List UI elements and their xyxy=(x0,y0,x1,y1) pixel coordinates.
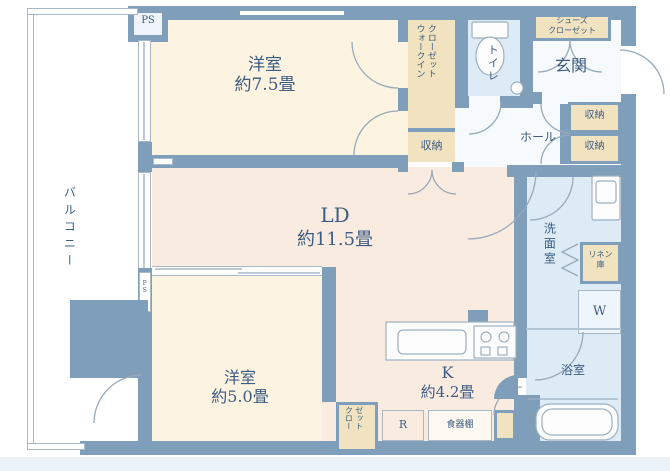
kitchen-label: K 約4.2畳 xyxy=(385,363,510,401)
bedroom2-size: 約5.0畳 xyxy=(211,387,268,406)
fridge-label: R xyxy=(382,418,424,431)
door-arc-exterior xyxy=(94,375,142,423)
kitchen-name: K xyxy=(442,363,454,382)
linen-label: リネン 庫 xyxy=(580,250,621,271)
ps-side-label: PS xyxy=(141,280,148,294)
linen-bifold-door xyxy=(562,244,578,276)
bedroom1-size: 約7.5畳 xyxy=(234,75,295,95)
toilet-washlet xyxy=(511,82,523,94)
door-arc-hall-storage-1 xyxy=(541,104,570,133)
bathtub-inner xyxy=(542,409,612,435)
hall-storage-2-label: 収納 xyxy=(568,141,621,153)
bedroom2-label: 洋室 約5.0畳 xyxy=(170,368,310,406)
door-arc-wic-storage-r xyxy=(432,170,456,194)
hall-label: ホール xyxy=(508,130,568,144)
living-label: LD 約11.5畳 xyxy=(265,204,405,251)
kitchen-sink xyxy=(398,330,466,354)
closet-label: クロー ゼット xyxy=(344,406,363,430)
ps-top-label: PS xyxy=(134,15,162,27)
door-arc-wic-storage-l xyxy=(408,170,432,194)
toilet-label: トイレ xyxy=(486,44,499,83)
door-arc-entrance xyxy=(620,50,664,94)
balcony-label: バルコニー xyxy=(62,186,76,271)
door-arc-washroom xyxy=(530,177,573,220)
door-arc-toilet xyxy=(469,102,501,134)
wic-label: ウォークイン クローゼット xyxy=(414,24,435,78)
stove-grill-1 xyxy=(481,347,490,355)
living-name: LD xyxy=(320,203,349,227)
stove-burner-1 xyxy=(481,332,491,342)
bedroom1-name: 洋室 xyxy=(248,55,282,75)
washbasin-bowl xyxy=(596,181,616,203)
bedroom2-name: 洋室 xyxy=(224,368,256,387)
bath-label: 浴室 xyxy=(540,363,606,377)
kitchen-size: 約4.2畳 xyxy=(421,383,475,401)
toilet-tank xyxy=(472,22,508,38)
sliding-door-lines xyxy=(155,269,320,273)
bedroom1-label: 洋室 約7.5畳 xyxy=(195,55,335,96)
cupboard-label: 食器棚 xyxy=(428,420,492,431)
hall-storage-1-label: 収納 xyxy=(568,110,621,122)
stove-grill-2 xyxy=(498,347,507,355)
floor-plan: PS バルコニー PS 洋室 約7.5畳 ウォークイン クローゼット 収納 トイ… xyxy=(0,0,670,471)
door-arc-living xyxy=(468,171,536,239)
washer-label: W xyxy=(578,304,621,320)
stove-burner-2 xyxy=(499,332,509,342)
living-size: 約11.5畳 xyxy=(297,229,373,250)
shoes-closet-label: シューズ クローゼット xyxy=(533,16,611,37)
washroom-label: 洗面室 xyxy=(542,222,556,267)
door-arc-wic xyxy=(354,111,398,155)
door-arc-bedroom1 xyxy=(352,42,398,88)
entrance-label: 玄関 xyxy=(540,56,602,75)
kitchen-stove xyxy=(474,326,516,358)
wic-storage-label: 収納 xyxy=(408,139,455,152)
